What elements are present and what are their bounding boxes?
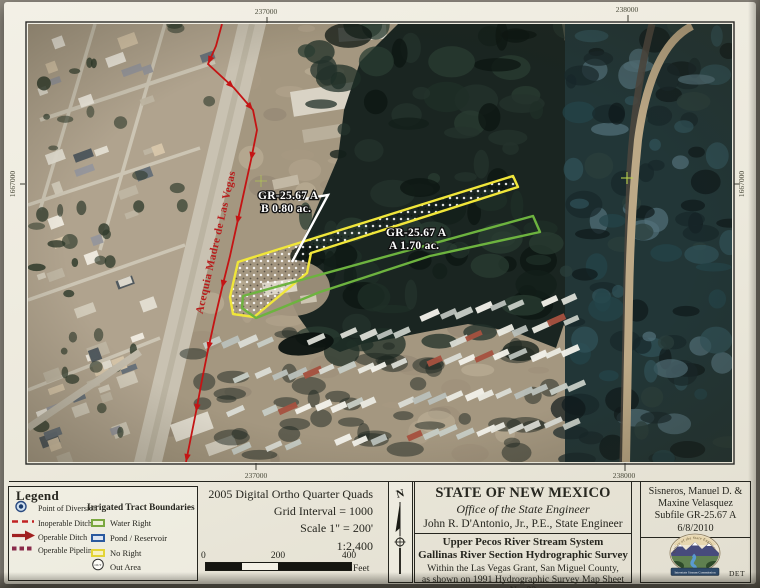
scanned-map-sheet: 237000 238000 237000 238000 1667000 1667… (0, 0, 760, 588)
sheet-note-line: as shown on 1991 Hydrographic Survey Map… (415, 574, 631, 588)
owner-name-line1: Sisneros, Manuel D. & (641, 486, 750, 498)
photo-vignette (28, 24, 732, 462)
svg-text:OUT: OUT (95, 563, 103, 567)
owner-name-line2: Maxine Velasquez (641, 498, 750, 510)
subfile-number: Subfile GR-25.67 A (641, 510, 750, 522)
scalebar-tick-0: 0 (201, 551, 206, 561)
scalebar-tick-200: 200 (266, 551, 290, 561)
survey-section-line: Gallinas River Section Hydrographic Surv… (415, 549, 631, 562)
tract-boundaries-title: Irrigated Tract Boundaries (87, 503, 195, 513)
legend-label: Out Area (110, 562, 141, 572)
north-arrow: N (389, 482, 411, 581)
scale-source-block: 2005 Digital Ortho Quarter Quads Grid In… (200, 486, 373, 555)
scalebar-unit: Feet (353, 564, 369, 574)
scale-bar (205, 562, 352, 571)
out-area-icon: OUT (91, 558, 105, 571)
legend-item-water-right: Water Right (91, 517, 151, 528)
grid-interval-line: Grid Interval = 1000 (200, 503, 373, 520)
legend-item-no-right: No Right (91, 547, 141, 558)
inoperable-ditch-icon (11, 515, 35, 528)
stream-system-line: Upper Pecos River Stream System (415, 536, 631, 549)
legend-label: Operable Pipeline (38, 546, 96, 555)
coord-bottom-237000: 237000 (245, 471, 268, 478)
operable-pipeline-icon (11, 542, 35, 555)
no-right-swatch (91, 549, 105, 557)
legend-item-out-area: OUT Out Area (91, 561, 141, 572)
aerial-photo-map: 237000 238000 237000 238000 1667000 1667… (0, 0, 760, 478)
water-right-swatch (91, 519, 105, 527)
legend-label: No Right (110, 548, 141, 558)
tract-a-id-label: GR-25.67 A (386, 227, 447, 239)
state-title: STATE OF NEW MEXICO (415, 485, 631, 502)
title-block-divider (415, 533, 631, 534)
point-of-diversion-icon (11, 500, 35, 513)
coord-top-237000: 237000 (255, 7, 278, 16)
engineer-line: John R. D'Antonio, Jr., P.E., State Engi… (415, 518, 631, 530)
tract-b-area-label: B 0.80 ac. (261, 203, 311, 215)
legend-label: Operable Ditch (38, 533, 87, 542)
north-arrow-box: N (388, 481, 413, 583)
tract-a-area-label: A 1.70 ac. (389, 240, 439, 252)
state-engineer-seal: Office of the State Engineer Interstate … (667, 532, 723, 578)
scale-line: Scale 1" = 200' (200, 520, 373, 537)
legend-item-point-of-diversion: Point of Diversion (11, 502, 97, 515)
office-subtitle: Office of the State Engineer (415, 502, 631, 517)
title-block: STATE OF NEW MEXICO Office of the State … (414, 481, 632, 583)
coord-left-1667000: 1667000 (8, 171, 17, 198)
legend-label: Pond / Reservoir (110, 533, 167, 543)
legend-label: Water Right (110, 518, 151, 528)
north-label: N (395, 487, 406, 501)
pond-swatch (91, 534, 105, 542)
scalebar-tick-400: 400 (337, 551, 361, 561)
sheet-code: DET (729, 569, 745, 578)
legend-item-operable-pipeline: Operable Pipeline (11, 544, 96, 557)
tract-b-id-label: GR-25.67 A (258, 190, 319, 202)
coord-bottom-238000: 238000 (613, 471, 636, 478)
seal-banner-text: Interstate Stream Commission (674, 570, 715, 574)
operable-ditch-icon (11, 529, 35, 542)
coord-top-238000: 238000 (616, 5, 639, 14)
source-line: 2005 Digital Ortho Quarter Quads (200, 486, 373, 503)
legend-label: Inoperable Ditch (38, 519, 92, 528)
legend-item-pond-reservoir: Pond / Reservoir (91, 532, 167, 543)
grant-note-line: Within the Las Vegas Grant, San Miguel C… (415, 563, 631, 574)
